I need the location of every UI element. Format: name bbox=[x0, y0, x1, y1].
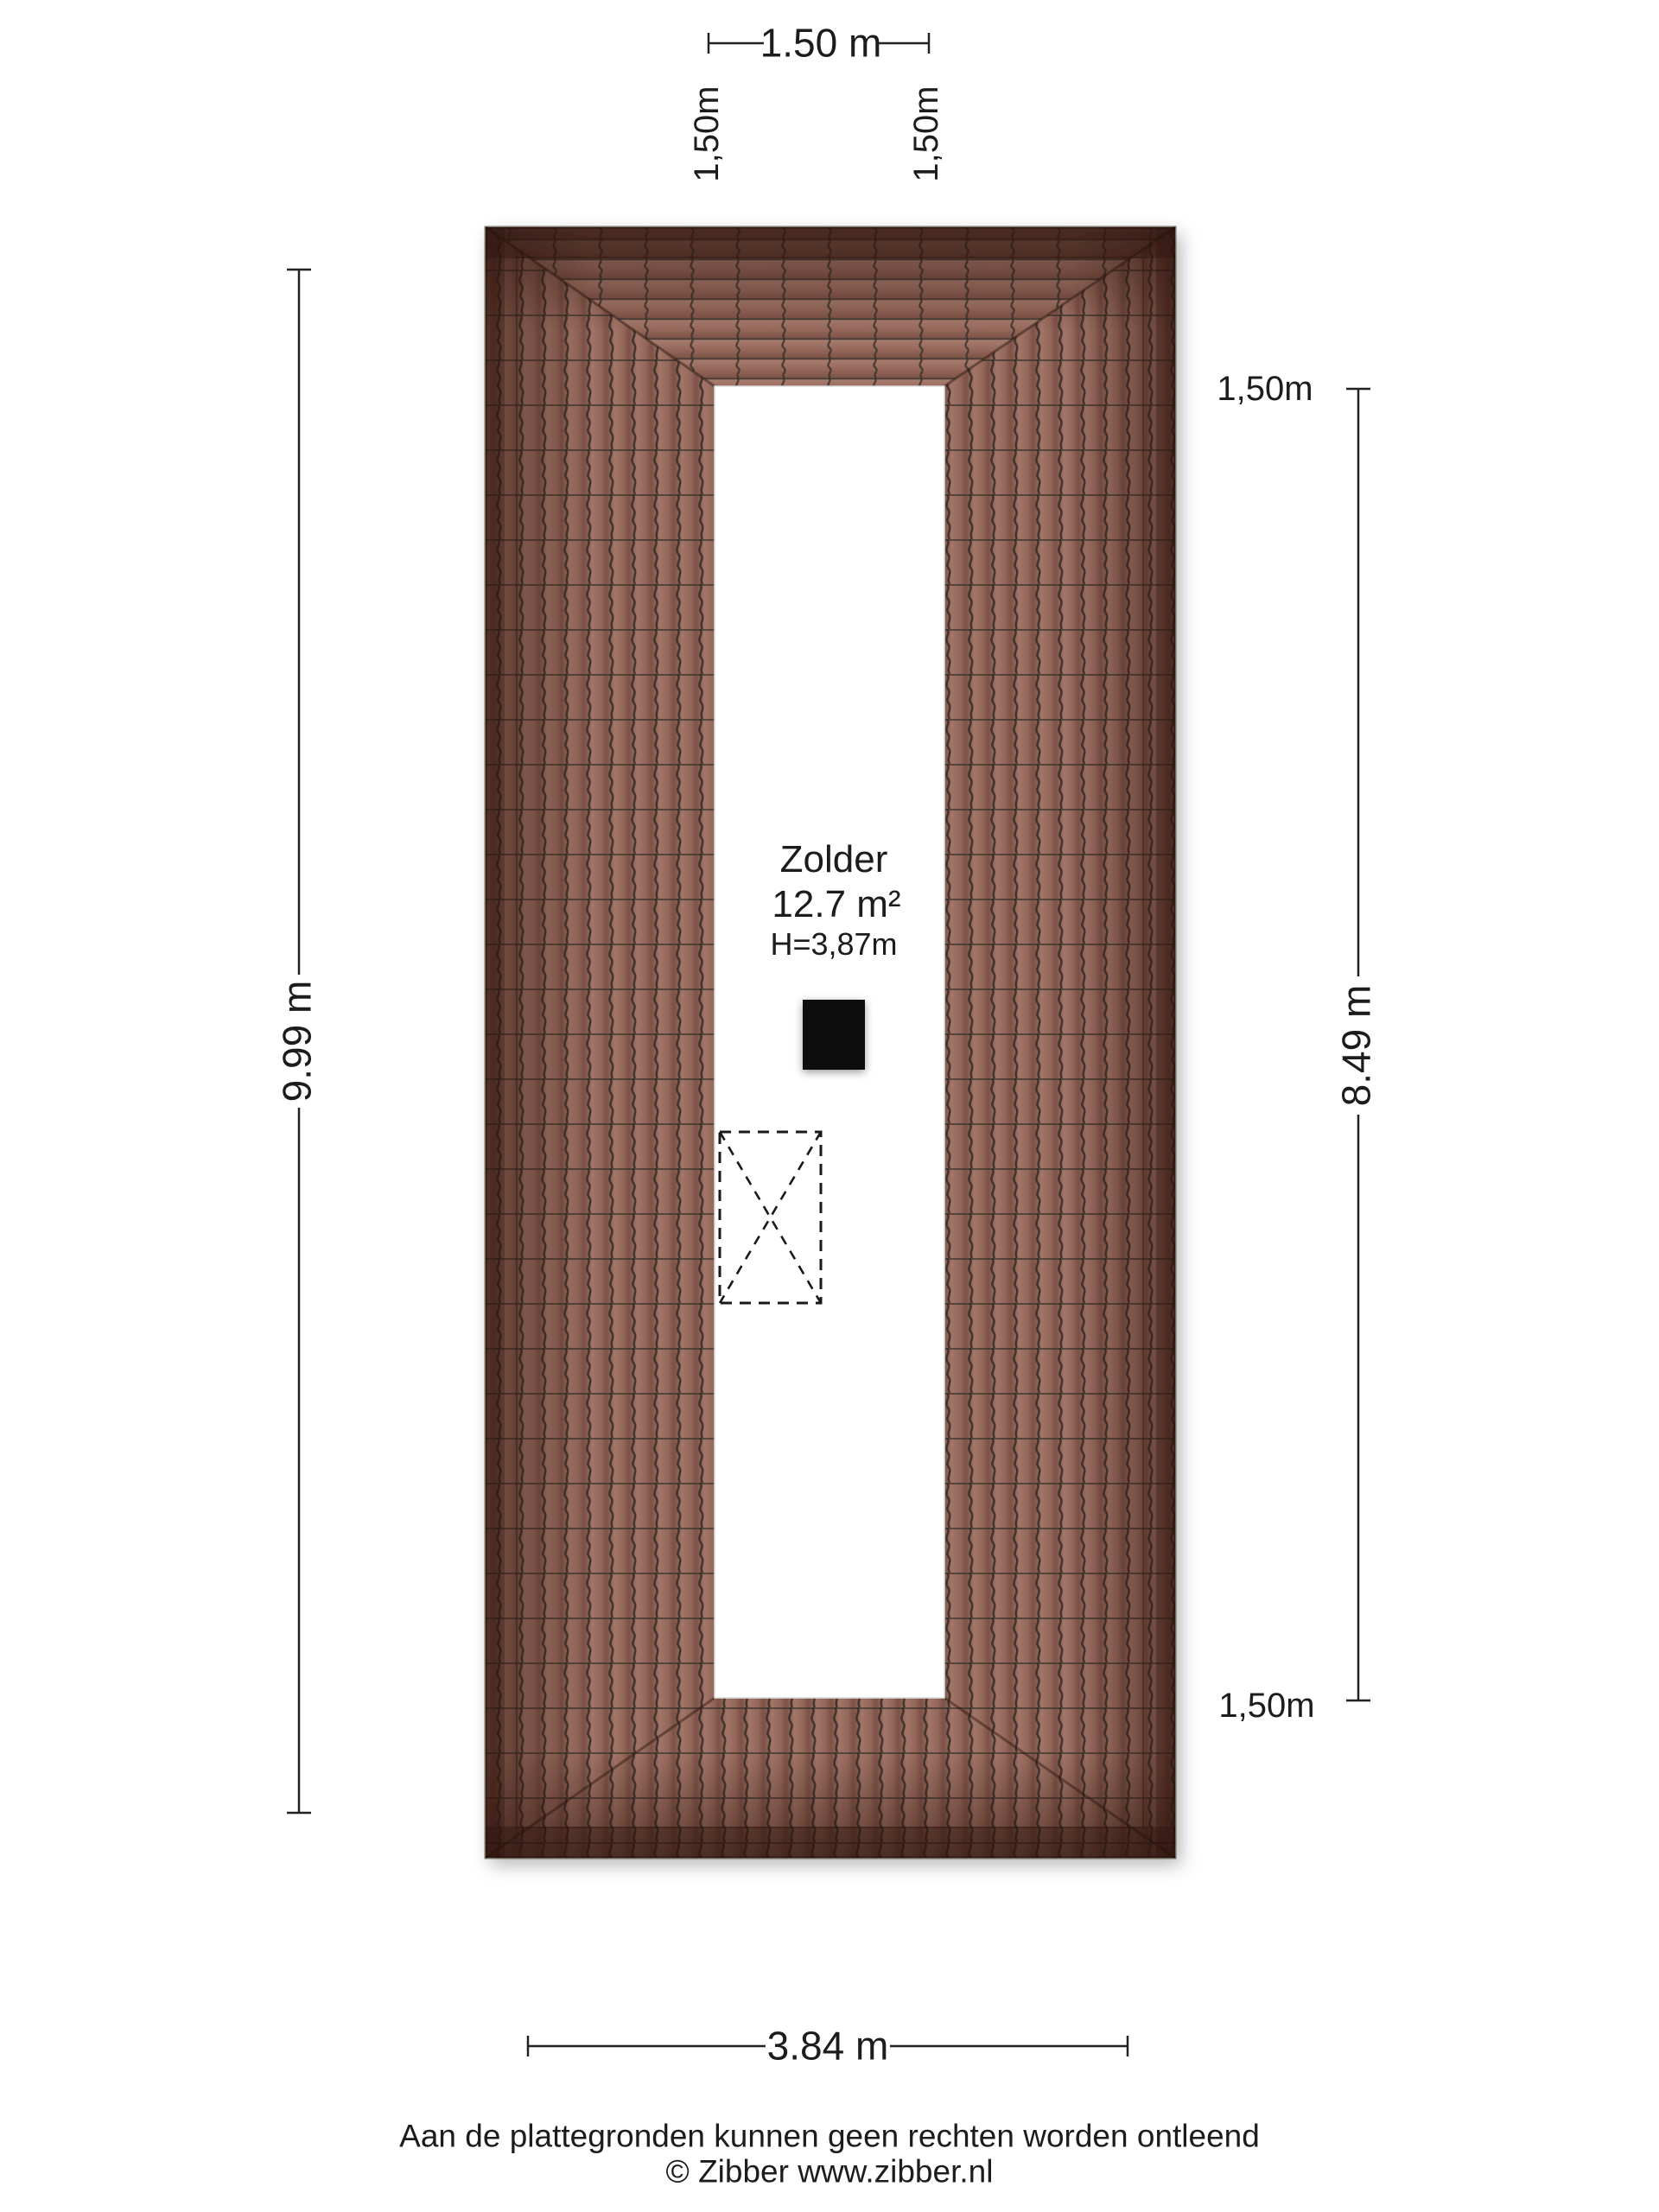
dimension-label-right-bottom-height: 1,50m bbox=[1218, 1687, 1314, 1725]
room-area: 12.7 m² bbox=[772, 884, 900, 925]
footer-disclaimer: Aan de plattegronden kunnen geen rechten… bbox=[399, 2120, 1260, 2155]
dimension-label-top-width: 1.50 m bbox=[760, 22, 882, 66]
dimension-label-right-depth: 8.49 m bbox=[1335, 985, 1379, 1107]
dimension-label-right-top-height: 1,50m bbox=[1217, 370, 1313, 408]
roof-ridge-band-top bbox=[486, 227, 1175, 258]
floorplan-page: 1.50 m 1,50m 1,50m 9.99 m 8.49 m 1,50m 1… bbox=[0, 0, 1659, 2212]
dimension-label-top-right-height: 1,50m bbox=[907, 86, 945, 181]
roof-plan-svg bbox=[0, 0, 1659, 2212]
roof-ridge-band-bottom bbox=[486, 1827, 1175, 1858]
roof-ridge-band-right bbox=[1156, 227, 1175, 1858]
dimension-label-bottom-width: 3.84 m bbox=[767, 2024, 889, 2069]
dimension-label-top-left-height: 1,50m bbox=[688, 86, 726, 181]
chimney bbox=[803, 1000, 865, 1070]
footer-copyright: © Zibber www.zibber.nl bbox=[666, 2155, 994, 2190]
roof-ridge-band-left bbox=[486, 227, 505, 1858]
room-name: Zolder bbox=[780, 839, 888, 880]
room-ceiling-height: H=3,87m bbox=[770, 927, 897, 962]
dimension-label-left-depth: 9.99 m bbox=[276, 981, 320, 1103]
